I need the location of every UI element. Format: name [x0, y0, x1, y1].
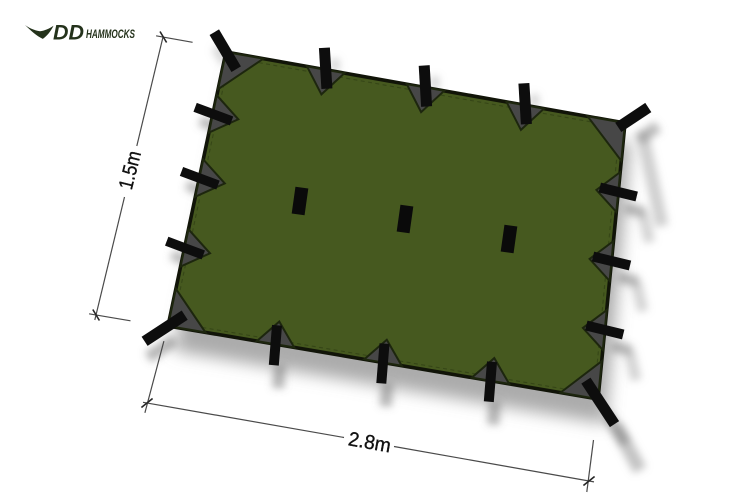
svg-text:HAMMOCKS: HAMMOCKS — [86, 29, 135, 41]
svg-text:DD: DD — [53, 22, 84, 45]
